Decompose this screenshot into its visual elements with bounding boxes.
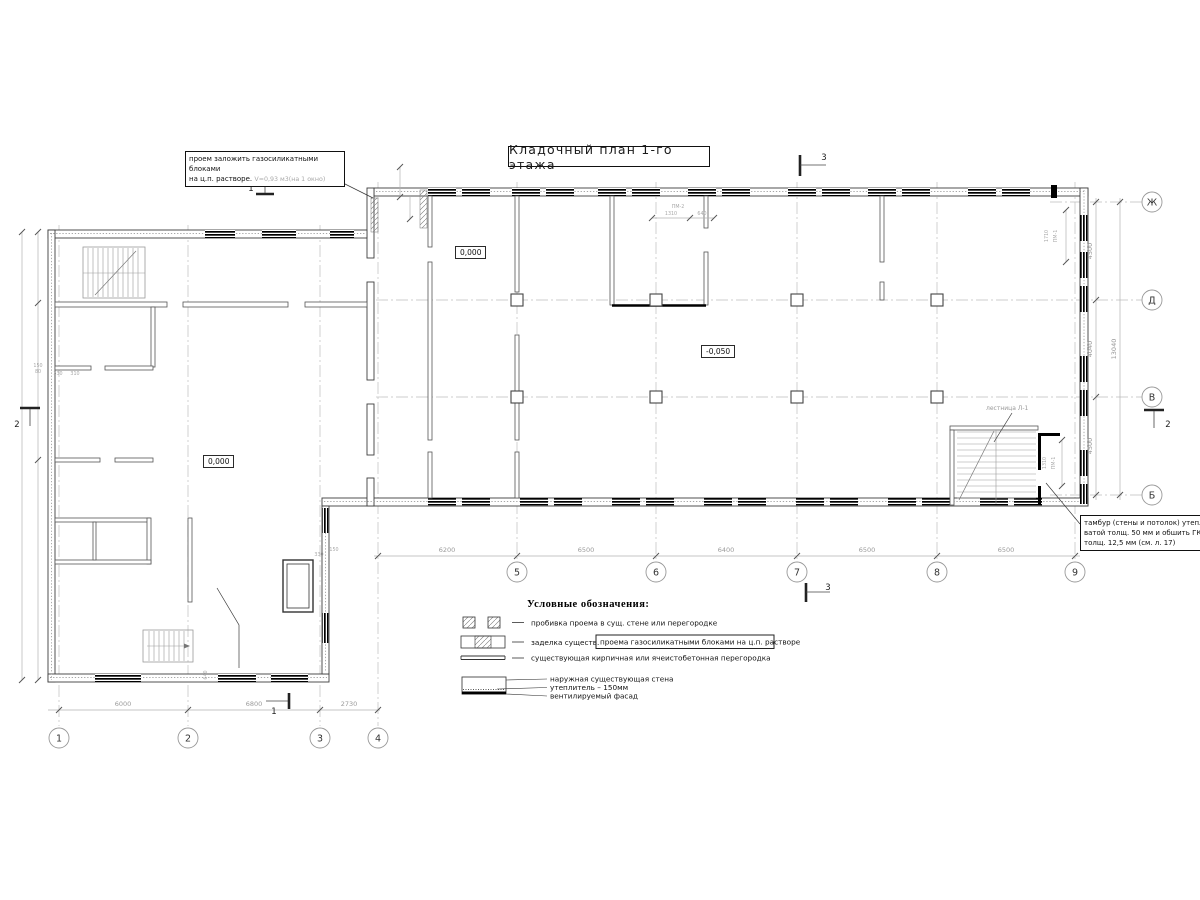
infilled-opening-hatch	[420, 190, 427, 228]
svg-text:13040: 13040	[1110, 339, 1118, 360]
svg-text:2730: 2730	[341, 700, 358, 708]
svg-text:1310: 1310	[1042, 457, 1048, 469]
callout-opening-line2: на ц.п. растворе.	[189, 175, 252, 183]
stairs-bottom-right	[957, 430, 1036, 504]
callout-tambour-line2: ватой толщ. 50 мм и обшить ГКЛ	[1084, 528, 1200, 538]
elevation-mark-hall: 0,000	[455, 246, 486, 259]
svg-text:1: 1	[271, 707, 276, 717]
svg-text:существующая кирпичная или яче: существующая кирпичная или ячеистобетонн…	[531, 654, 771, 663]
svg-text:заделка существ.: заделка существ.	[531, 638, 599, 647]
svg-text:3: 3	[821, 153, 826, 163]
leader-line	[217, 588, 239, 668]
svg-text:330: 330	[53, 371, 62, 377]
svg-text:вентилируемый фасад: вентилируемый фасад	[550, 692, 638, 701]
svg-text:проема газосиликатными блоками: проема газосиликатными блоками на ц.п. р…	[600, 638, 801, 647]
stair-arrow	[184, 644, 190, 649]
svg-text:ПМ-1: ПМ-1	[1051, 457, 1057, 470]
drawing-title: Кладочный план 1-го этажа	[508, 146, 710, 167]
legend: Условные обозначения: пробивка проема в …	[461, 599, 801, 701]
stairs-top-left	[83, 247, 145, 298]
svg-text:640: 640	[697, 211, 706, 217]
legend-item-outer-wall: наружная существующая стена утеплитель –…	[462, 675, 673, 701]
svg-text:ПМ-1: ПМ-1	[1053, 230, 1059, 243]
svg-text:80: 80	[35, 369, 41, 375]
stairs-bottom-wing	[143, 630, 193, 662]
callout-tambour-line3: толщ. 12,5 мм (см. л. 17)	[1084, 538, 1200, 548]
svg-text:6800: 6800	[246, 700, 263, 708]
svg-text:6: 6	[653, 568, 659, 579]
section-1-bottom: 1	[266, 693, 289, 717]
legend-item-existing-partition: существующая кирпичная или ячеистобетонн…	[461, 654, 771, 663]
svg-text:Б: Б	[1149, 491, 1156, 502]
svg-text:Д: Д	[1148, 296, 1155, 307]
svg-text:1710: 1710	[1044, 230, 1050, 242]
svg-text:ПМ-2: ПМ-2	[672, 204, 685, 210]
section-2-left: 2	[14, 408, 40, 430]
svg-text:8: 8	[934, 568, 940, 579]
legend-heading: Условные обозначения:	[527, 599, 649, 610]
svg-text:2: 2	[1165, 420, 1170, 430]
svg-text:9: 9	[1072, 568, 1078, 579]
svg-text:В: В	[1149, 393, 1156, 404]
wall-cut-mark	[1051, 185, 1057, 198]
section-3-top: 3	[800, 153, 827, 176]
svg-text:6500: 6500	[859, 546, 876, 554]
plan-svg: 6200 6500 6400 6500 6500 6000 6800 2730 …	[0, 0, 1200, 900]
tambour-box-inner	[287, 564, 309, 608]
svg-text:640: 640	[203, 670, 209, 679]
legend-item-infill: заделка существ. проема газосиликатными …	[461, 635, 801, 649]
svg-text:6000: 6000	[115, 700, 132, 708]
svg-text:4500: 4500	[1086, 438, 1094, 455]
callout-opening-line1: проем заложить газосиликатными блоками	[189, 154, 341, 174]
svg-text:3: 3	[317, 734, 323, 745]
elevation-mark-low: -0,050	[701, 345, 735, 358]
dimension-lines	[19, 164, 1123, 713]
callout-tambour: тамбур (стены и потолок) утеплить ватой …	[1080, 515, 1200, 551]
svg-text:3: 3	[825, 583, 830, 593]
infilled-opening-hatch	[371, 198, 378, 232]
svg-text:4: 4	[375, 734, 381, 745]
callout-opening-infill: проем заложить газосиликатными блоками н…	[185, 151, 345, 187]
svg-text:330: 330	[314, 552, 323, 558]
legend-item-opening: пробивка проема в сущ. стене или перегор…	[463, 617, 718, 628]
svg-text:Ж: Ж	[1147, 198, 1158, 209]
svg-text:150: 150	[329, 547, 338, 553]
svg-text:5: 5	[514, 568, 520, 579]
svg-text:2: 2	[185, 734, 191, 745]
grid-bubbles: 1 2 3 4 5 6 7 8 9 Ж Д В Б	[49, 192, 1162, 748]
tambour-box	[283, 560, 313, 612]
section-2-right: 2	[1144, 410, 1171, 430]
svg-text:пробивка проема в сущ. стене и: пробивка проема в сущ. стене или перегор…	[531, 619, 718, 628]
svg-text:1310: 1310	[665, 211, 677, 217]
section-3-bottom: 3	[806, 583, 831, 602]
svg-text:6500: 6500	[578, 546, 595, 554]
svg-text:4500: 4500	[1086, 243, 1094, 260]
svg-text:6200: 6200	[439, 546, 456, 554]
drawing-title-text: Кладочный план 1-го этажа	[509, 142, 709, 172]
svg-text:4040: 4040	[1086, 341, 1094, 358]
drawing-sheet: 6200 6500 6400 6500 6500 6000 6800 2730 …	[0, 0, 1200, 900]
svg-text:2: 2	[14, 420, 19, 430]
svg-text:1: 1	[56, 734, 62, 745]
svg-text:310: 310	[70, 371, 79, 377]
elevation-mark-wing: 0,000	[203, 455, 234, 468]
callout-tambour-line1: тамбур (стены и потолок) утеплить	[1084, 518, 1200, 528]
dimension-texts: 6200 6500 6400 6500 6500 6000 6800 2730 …	[33, 204, 1118, 708]
svg-text:150: 150	[33, 363, 42, 369]
stair-label: лестница Л-1	[986, 405, 1028, 412]
svg-text:7: 7	[794, 568, 800, 579]
callout-opening-note: V=0,93 м3(на 1 окно)	[254, 176, 325, 183]
svg-text:6500: 6500	[998, 546, 1015, 554]
hall-partitions	[428, 196, 1060, 505]
svg-text:6400: 6400	[718, 546, 735, 554]
